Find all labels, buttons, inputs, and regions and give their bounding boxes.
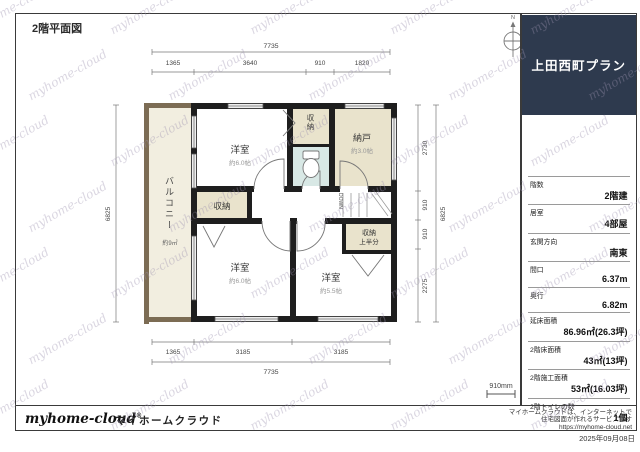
row-value: 6.37m (530, 274, 628, 284)
dim-top-total: 7735 (263, 43, 278, 50)
row-label: 階数 (530, 179, 628, 189)
row-label: 2階施工面積 (530, 372, 628, 382)
print-date: 2025年09月08日 (579, 433, 635, 444)
dim-top-seg2: 910 (315, 60, 326, 67)
dim-bottom-total: 7735 (263, 369, 278, 376)
row-value: 2階建 (530, 189, 628, 202)
room-top-name: 洋室 (230, 144, 249, 156)
desc-line2: 住宅図面が作れるサービスです (509, 416, 632, 423)
dim-right-seg2: 910 (422, 228, 429, 239)
row-label: 間口 (530, 264, 628, 274)
table-row: 奥行6.82m (528, 287, 630, 313)
room-top-size: 約6.0帖 (229, 158, 252, 167)
room-br-name: 洋室 (321, 272, 340, 284)
row-label: 奥行 (530, 290, 628, 300)
nando-name: 納戸 (353, 132, 371, 143)
dim-right-seg0: 2730 (422, 140, 429, 155)
dim-top-seg3: 1820 (355, 60, 370, 67)
row-value: 4部屋 (530, 217, 628, 230)
balcony-size-label: 約9㎡ (155, 238, 185, 247)
dim-top-seg0: 1365 (166, 60, 181, 67)
table-row: 延床面積86.96㎡(26.3坪) (528, 312, 630, 341)
row-value: 53㎡(16.03坪) (530, 382, 628, 395)
closet-mid-label: 収納 (213, 201, 230, 211)
table-row: 階数2階建 (528, 176, 630, 205)
table-row: 居室4部屋 (528, 204, 630, 233)
row-value: 43㎡(13坪) (530, 354, 628, 367)
row-value: 南東 (530, 246, 628, 259)
row-label: 延床面積 (530, 315, 628, 325)
row-value: 6.82m (530, 300, 628, 310)
dim-right-seg3: 2275 (422, 278, 429, 293)
row-label: 居室 (530, 207, 628, 217)
closet-top-label: 収納 (305, 114, 316, 131)
table-row: 2階施工面積53㎡(16.03坪) (528, 369, 630, 398)
row-value: 86.96㎡(26.3坪) (530, 325, 628, 338)
dim-right-total: 6825 (440, 206, 447, 221)
dim-top-seg1: 3640 (243, 60, 258, 67)
table-row: 2階床面積43㎡(13坪) (528, 341, 630, 370)
room-bl-size: 約6.0帖 (229, 276, 252, 285)
stairs-down-label: DOWN (337, 193, 343, 209)
balcony-label: バルコニー (163, 176, 176, 231)
compass-north-label: N (511, 15, 515, 21)
room-br-size: 約5.5帖 (320, 286, 343, 295)
closet-half-line1: 収納 (362, 228, 376, 237)
scale-bar (487, 390, 515, 398)
plan-title: 上田西町プラン (531, 55, 626, 74)
nando-size: 約3.0帖 (351, 146, 374, 155)
dim-bottom-seg2: 3185 (334, 349, 349, 356)
plan-title-header: 上田西町プラン (522, 15, 636, 115)
service-description: マイホームクラウドは、インターネットで 住宅図面が作れるサービスです https… (509, 409, 632, 431)
dim-left-total: 6825 (105, 206, 112, 221)
scale-bar-label: 910mm (489, 383, 513, 390)
footer-bar: myhome-cloud® マイホームクラウド マイホームクラウドは、インターネ… (15, 405, 637, 431)
table-row: 玄関方向南東 (528, 233, 630, 262)
room-bl-name: 洋室 (230, 262, 249, 274)
row-label: 2階床面積 (530, 344, 628, 354)
dim-bottom-seg1: 3185 (236, 349, 251, 356)
row-label: 玄関方向 (530, 236, 628, 246)
dim-right-seg1: 910 (422, 199, 429, 210)
dim-bottom-seg0: 1365 (166, 349, 181, 356)
floorplan-page: 2階平面図 (0, 0, 640, 452)
table-row: 間口6.37m (528, 261, 630, 287)
desc-url: https://myhome-cloud.net (509, 424, 632, 431)
plan-spec-table: 階数2階建 居室4部屋 玄関方向南東 間口6.37m 奥行6.82m 延床面積8… (522, 176, 636, 406)
toilet-icon (303, 151, 319, 178)
closet-half-line2: 上半分 (359, 237, 379, 246)
brand-name: マイホームクラウド (115, 413, 223, 428)
